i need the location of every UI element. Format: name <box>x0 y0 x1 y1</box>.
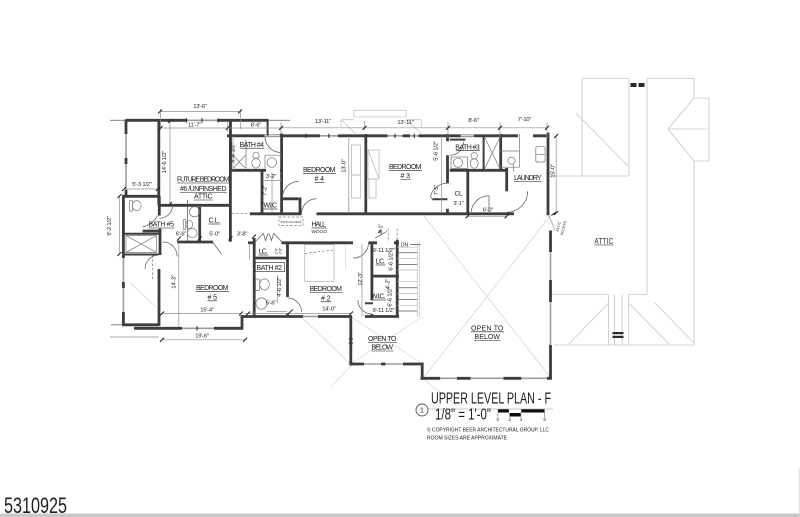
svg-text:BEDROOM: BEDROOM <box>303 167 336 174</box>
svg-text:#2: #2 <box>321 295 331 302</box>
svg-text:OPEN TO: OPEN TO <box>368 336 397 343</box>
svg-text:13'-6": 13'-6" <box>193 104 207 110</box>
svg-text:BATH #5: BATH #5 <box>149 222 175 229</box>
svg-text:BATH #4: BATH #4 <box>240 142 265 149</box>
svg-text:CL: CL <box>455 191 463 198</box>
svg-text:6'-6": 6'-6" <box>176 232 187 238</box>
svg-text:6'-6 1/2": 6'-6 1/2" <box>389 251 395 271</box>
svg-text:13'-11": 13'-11" <box>397 120 413 126</box>
svg-text:5310925: 5310925 <box>4 493 67 517</box>
svg-text:WOOD: WOOD <box>311 229 327 235</box>
svg-text:5'-6 1/2": 5'-6 1/2" <box>231 143 237 163</box>
svg-text:15'-4": 15'-4" <box>200 308 214 314</box>
svg-text:12'-3": 12'-3" <box>358 272 364 286</box>
svg-text:3'-2": 3'-2" <box>266 174 277 180</box>
svg-text:#4: #4 <box>315 176 325 183</box>
svg-text:W.I.C: W.I.C <box>264 203 278 210</box>
svg-text:ATTIC: ATTIC <box>194 194 213 201</box>
svg-text:BEDROOM: BEDROOM <box>310 286 343 293</box>
svg-text:ATTIC: ATTIC <box>595 236 614 246</box>
svg-text:LAUNDRY: LAUNDRY <box>514 175 542 182</box>
svg-text:C.L.: C.L. <box>209 218 221 225</box>
svg-text:1: 1 <box>420 408 424 415</box>
svg-text:FUTURE BEDROOM: FUTURE BEDROOM <box>177 177 230 184</box>
svg-text:8'-6": 8'-6" <box>251 122 262 128</box>
svg-text:ATTIC ACCESS: ATTIC ACCESS <box>281 220 302 224</box>
svg-text:9'-2 1/2": 9'-2 1/2" <box>107 216 113 236</box>
svg-text:OPEN TO: OPEN TO <box>471 325 504 332</box>
svg-text:5'-6 1/2": 5'-6 1/2" <box>434 141 440 161</box>
svg-text:2'-6": 2'-6" <box>278 247 282 254</box>
svg-text:L.C.: L.C. <box>259 248 268 255</box>
svg-text:14'-3": 14'-3" <box>172 275 178 289</box>
svg-text:7'-10": 7'-10" <box>518 117 532 123</box>
svg-text:BELOW: BELOW <box>475 334 501 341</box>
svg-text:7'-5": 7'-5" <box>434 185 440 196</box>
svg-text:19'-6": 19'-6" <box>195 334 209 340</box>
svg-text:14'-0": 14'-0" <box>322 307 336 313</box>
svg-text:#6 /UNFINSHED: #6 /UNFINSHED <box>180 186 227 193</box>
svg-text:4'-6 1/2": 4'-6 1/2" <box>277 277 283 297</box>
svg-text:5'-0": 5'-0" <box>209 232 220 238</box>
svg-text:13'-11": 13'-11" <box>315 119 331 125</box>
svg-text:5'-6": 5'-6" <box>266 301 277 307</box>
svg-text:BEDROOM: BEDROOM <box>196 285 229 292</box>
svg-text:#5: #5 <box>208 294 218 301</box>
svg-text:14'-6 1/2": 14'-6 1/2" <box>162 151 168 174</box>
svg-text:BATH #2: BATH #2 <box>257 265 283 272</box>
svg-text:3'-1": 3'-1" <box>454 201 464 207</box>
svg-text:UPPER LEVEL PLAN - F: UPPER LEVEL PLAN - F <box>431 391 551 408</box>
svg-text:5'-3 1/2": 5'-3 1/2" <box>132 182 152 188</box>
svg-text:DN: DN <box>401 243 409 249</box>
svg-text:1/8" = 1'-0": 1/8" = 1'-0" <box>435 407 491 424</box>
svg-text:3'-8": 3'-8" <box>237 232 248 238</box>
svg-text:#3: #3 <box>401 173 411 180</box>
svg-text:4'-1": 4'-1" <box>379 224 385 235</box>
svg-text:7'-2": 7'-2" <box>263 185 269 196</box>
svg-text:13'-0": 13'-0" <box>342 159 348 173</box>
svg-text:11'-7": 11'-7" <box>188 122 201 128</box>
svg-text:8'-6": 8'-6" <box>468 118 479 124</box>
svg-text:BELOW: BELOW <box>372 345 394 352</box>
svg-text:BEDROOM: BEDROOM <box>389 164 422 171</box>
svg-text:15'-0": 15'-0" <box>551 164 557 178</box>
svg-text:6'-0": 6'-0" <box>483 208 494 214</box>
svg-text:© COPYRIGHT BEER ARCHITECTURAL: © COPYRIGHT BEER ARCHITECTURAL GROUP, LL… <box>427 427 549 434</box>
svg-text:HALL: HALL <box>312 222 327 229</box>
svg-text:ROOM SIZES ARE APPROXIMATE: ROOM SIZES ARE APPROXIMATE <box>427 436 507 442</box>
svg-text:L.C.: L.C. <box>376 259 386 266</box>
svg-text:4'-2": 4'-2" <box>386 279 392 290</box>
svg-text:9'-11 1/2": 9'-11 1/2" <box>372 308 394 314</box>
svg-text:BATH #3: BATH #3 <box>455 144 480 151</box>
svg-text:W.I.C.: W.I.C. <box>371 294 386 301</box>
